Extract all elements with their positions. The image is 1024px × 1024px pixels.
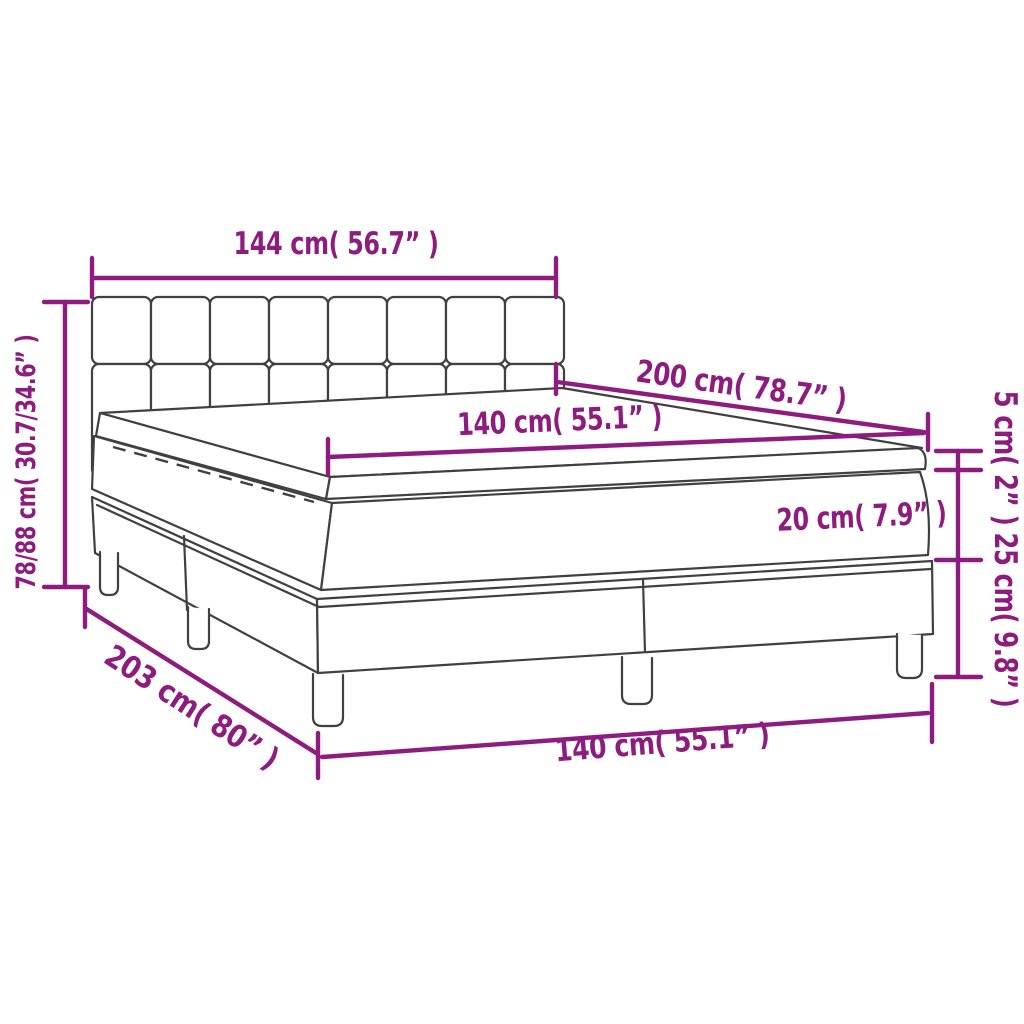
bed-leg: [313, 674, 343, 726]
dim-base-height-label: 25 cm( 9.8” ): [987, 533, 1023, 708]
headboard-tile: [446, 297, 505, 364]
headboard-tile: [505, 297, 564, 364]
headboard-tile: [151, 297, 210, 364]
diagram-canvas: 144 cm( 56.7” ) 200 cm( 78.7” ) 140 cm( …: [0, 0, 1024, 1024]
bed-leg: [622, 657, 652, 704]
dim-total-height-label: 78/88 cm( 30.7/34.6” ): [11, 335, 42, 590]
dim-headboard-width-label: 144 cm( 56.7” ): [234, 226, 439, 262]
headboard-tile: [387, 297, 446, 364]
headboard-tile: [269, 297, 328, 364]
headboard-tile: [92, 297, 151, 364]
dim-mattress-height-label: 20 cm( 7.9” ): [776, 495, 947, 539]
bed-leg: [100, 552, 118, 595]
dim-total-height: 78/88 cm( 30.7/34.6” ): [11, 302, 88, 590]
dim-right-bracket: 5 cm( 2” ) 25 cm( 9.8” ): [936, 391, 1023, 708]
bed-leg: [188, 607, 209, 649]
bed-dimension-diagram: 144 cm( 56.7” ) 200 cm( 78.7” ) 140 cm( …: [0, 0, 1024, 1024]
dim-headboard-width: 144 cm( 56.7” ): [92, 226, 556, 297]
dim-topper-height-label: 5 cm( 2” ): [987, 391, 1023, 526]
bed-leg: [897, 634, 922, 678]
dim-mattress-height: 20 cm( 7.9” ): [776, 495, 947, 539]
headboard-tile: [328, 297, 387, 364]
dim-base-width-label: 140 cm( 55.1” ): [554, 717, 771, 770]
headboard-tile: [210, 297, 269, 364]
dim-base-length-label: 203 cm( 80” ): [98, 638, 285, 777]
